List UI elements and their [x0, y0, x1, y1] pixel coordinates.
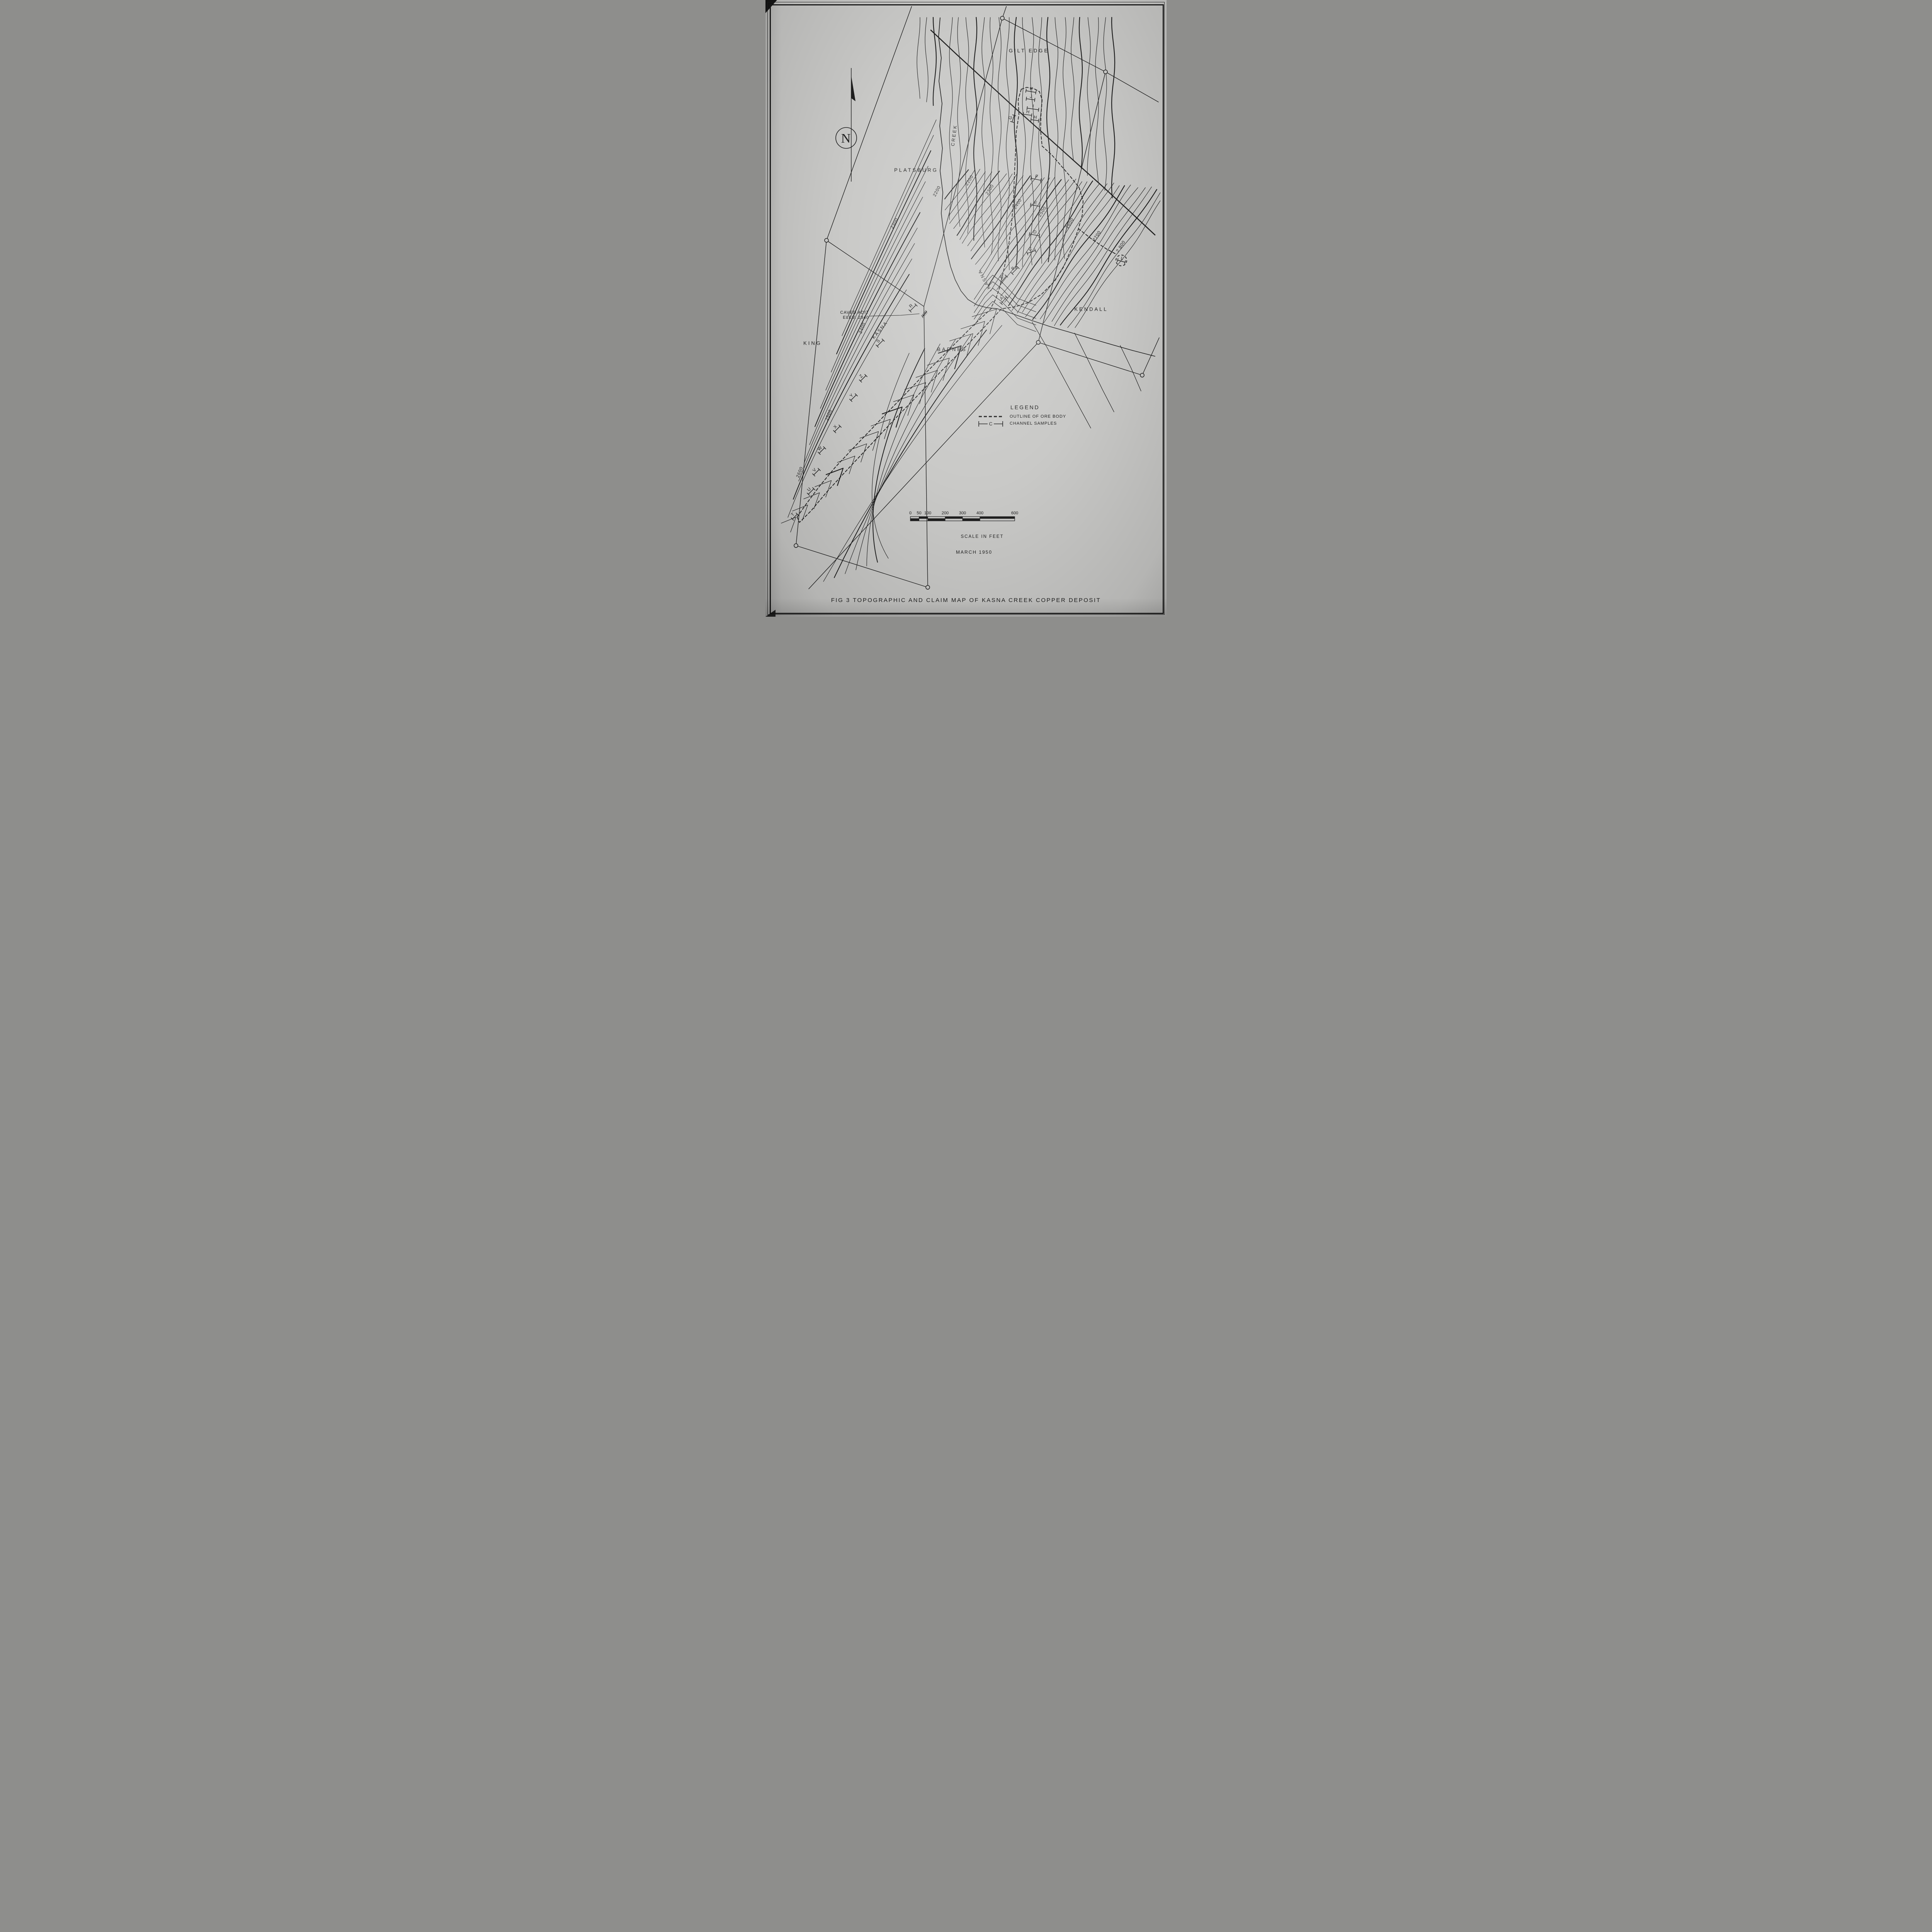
channel-sample-letter: I — [1032, 104, 1034, 109]
channel-sample-letter: L — [1120, 256, 1124, 261]
figure-title: FIG 3 TOPOGRAPHIC AND CLAIM MAP OF KASNA… — [765, 597, 1167, 604]
channel-sample-L: L — [1117, 255, 1126, 264]
legend-item-channel: C CHANNEL SAMPLES — [977, 420, 1078, 427]
caved-adit-icon — [921, 310, 928, 318]
channel-symbol-letter: C — [989, 421, 993, 427]
channel-sample-Y: Y — [847, 391, 858, 402]
legend-item-ore: OUTLINE OF ORE BODY — [977, 414, 1078, 419]
north-label: N — [841, 131, 851, 146]
claim-label-platsburg: PLATSBURG — [894, 167, 938, 173]
north-arrow: N — [836, 68, 857, 182]
channel-sample-F: F — [1031, 173, 1042, 182]
channel-sample-Z: Z — [857, 372, 867, 383]
scale-tick-label-200: 200 — [942, 511, 949, 515]
channel-sample-icon: C — [977, 420, 1004, 427]
scale-tick-label-0: 0 — [909, 511, 912, 515]
channel-sample-T: T — [789, 510, 798, 520]
claim-label-barnes: BARNES — [937, 347, 967, 352]
channel-sample-letter: E — [1034, 201, 1037, 206]
channel-sample-B: B — [1009, 264, 1019, 275]
adit-note-line1: CAVED ADIT — [840, 310, 869, 315]
channel-sample-H: H — [1031, 115, 1039, 123]
channel-sample-letter: F — [1035, 174, 1038, 179]
scale-tick-label-50: 50 — [917, 511, 921, 515]
channel-sample-R: R — [906, 301, 917, 312]
channel-sample-letter: C — [1028, 247, 1033, 252]
scale-tick-label-600: 600 — [1011, 511, 1018, 515]
channel-sample-letter: H — [1026, 110, 1030, 115]
adit-note: CAVED ADIT ELEV. 2340 — [840, 310, 869, 320]
channel-sample-E: E — [1030, 200, 1041, 208]
claim-label-king: KING — [803, 340, 822, 346]
scale-caption: SCALE IN FEET — [961, 534, 1004, 539]
dashed-line-icon — [977, 415, 1004, 418]
channel-sample-letter: K — [1029, 87, 1033, 92]
scale-bar — [910, 517, 1015, 521]
legend-ore-label: OUTLINE OF ORE BODY — [1010, 414, 1066, 419]
map-sheet: KJIHGHFEDCBBALRSZYXWVUTN GILT EDGEPLATSB… — [765, 0, 1167, 617]
channel-sample-X: X — [831, 423, 842, 433]
channel-sample-V: V — [810, 466, 821, 476]
channel-sample-letter: D — [1033, 230, 1037, 235]
claim-label-kendall: KENDALL — [1074, 306, 1108, 312]
scale-tick-label-400: 400 — [976, 511, 983, 515]
scale-tick-label-100: 100 — [924, 511, 931, 515]
legend-title: LEGEND — [1010, 404, 1078, 410]
adit-note-line2: ELEV. 2340 — [840, 315, 869, 320]
legend-channel-label: CHANNEL SAMPLES — [1010, 421, 1057, 426]
channel-sample-J: J — [1026, 94, 1035, 102]
scale-tick-label-300: 300 — [959, 511, 966, 515]
figure-date: MARCH 1950 — [956, 549, 992, 555]
legend: LEGEND OUTLINE OF ORE BODY C CHANNEL SAM… — [977, 404, 1078, 427]
claim-label-gilt-edge: GILT EDGE — [1009, 48, 1049, 54]
channel-sample-letter: H — [1033, 115, 1037, 120]
channel-sample-letter: W — [817, 446, 823, 452]
